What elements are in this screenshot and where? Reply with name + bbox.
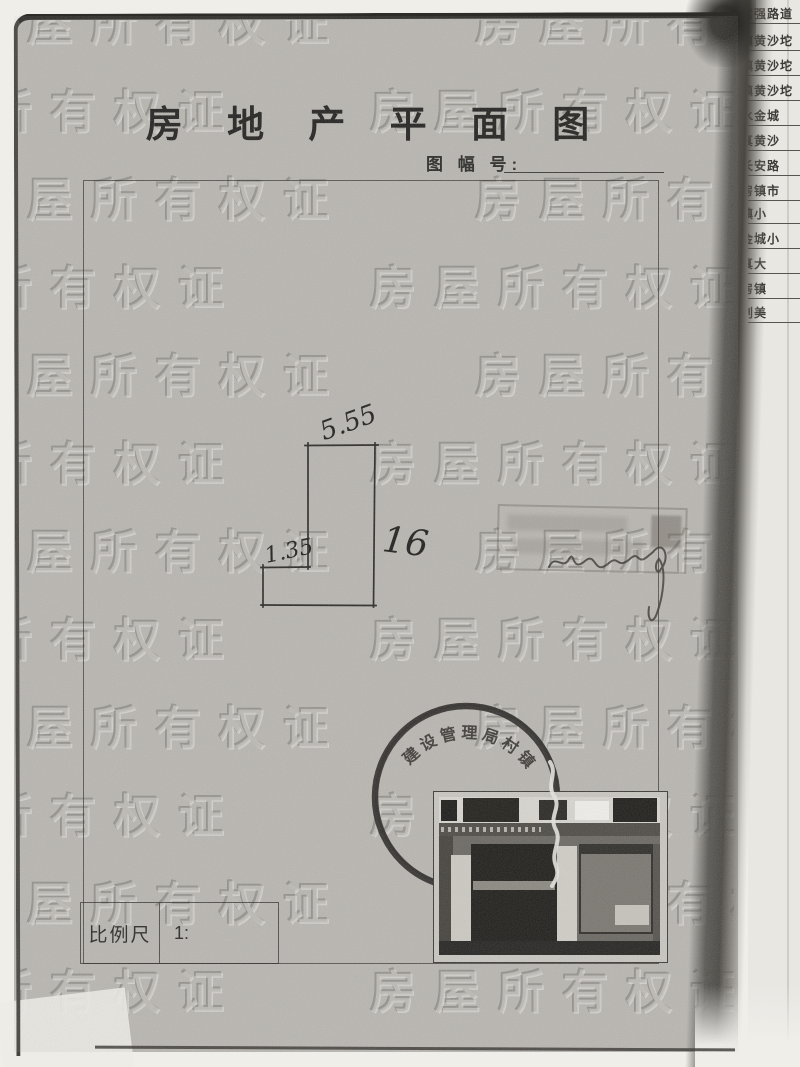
scanned-document: 房屋所有权证 房屋所有权证 房屋所有权证房屋所有权证 房屋所有权证 房屋所有权证… xyxy=(0,0,800,1067)
page-edge-outline xyxy=(14,12,743,1056)
